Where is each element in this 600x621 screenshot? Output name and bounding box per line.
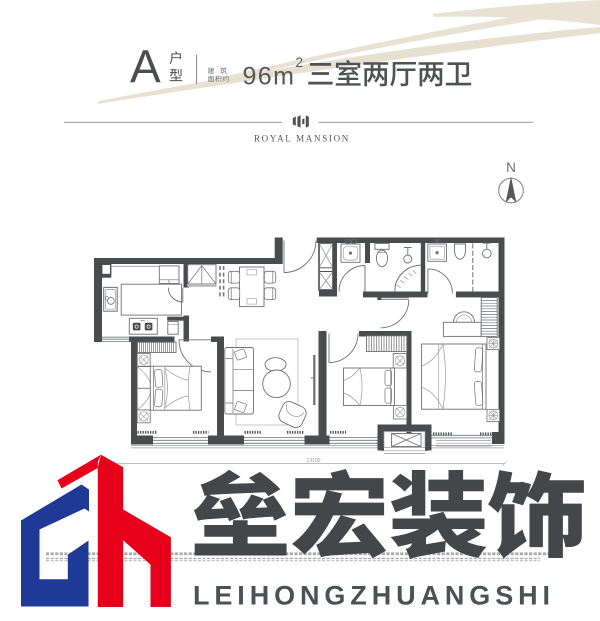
- svg-text:13100: 13100: [307, 458, 321, 464]
- svg-text:2: 2: [296, 55, 304, 70]
- svg-text:N: N: [506, 160, 516, 175]
- svg-text:LEIHONGZHUANGSHI: LEIHONGZHUANGSHI: [193, 581, 555, 611]
- svg-text:96m: 96m: [243, 62, 296, 90]
- svg-text:ROYAL MANSION: ROYAL MANSION: [254, 134, 350, 144]
- svg-text:A: A: [130, 41, 161, 93]
